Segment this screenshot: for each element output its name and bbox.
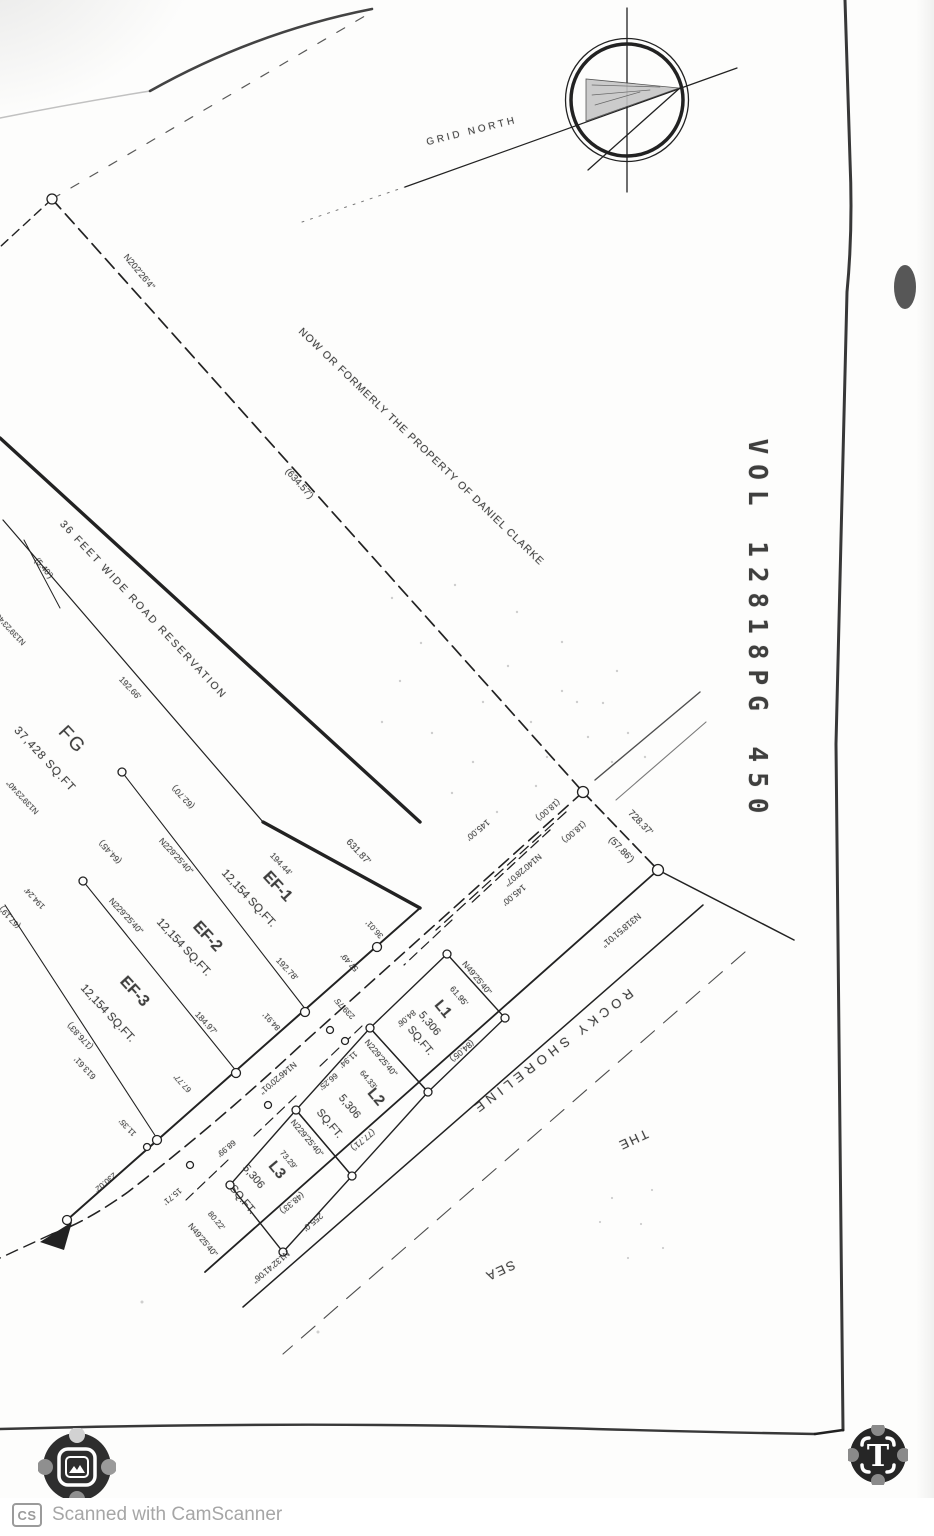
road-arrowhead bbox=[40, 1222, 72, 1250]
survey-node-markers bbox=[47, 194, 664, 1256]
t-glyph: T bbox=[867, 1439, 890, 1474]
text-marker-icon[interactable]: T bbox=[848, 1425, 908, 1485]
survey-plat-drawing bbox=[0, 0, 934, 1536]
image-marker-icon[interactable] bbox=[38, 1428, 116, 1506]
scan-smudge bbox=[894, 265, 916, 309]
compass-rose bbox=[302, 8, 737, 222]
camscanner-footer-text: Scanned with CamScanner bbox=[52, 1504, 282, 1526]
camscanner-document-view: GRID NORTHVOL 12818PG 450NOW OR FORMERLY… bbox=[0, 0, 934, 1536]
map-label: VOL 12818PG 450 bbox=[744, 439, 770, 824]
camscanner-logo: CS bbox=[12, 1503, 42, 1527]
